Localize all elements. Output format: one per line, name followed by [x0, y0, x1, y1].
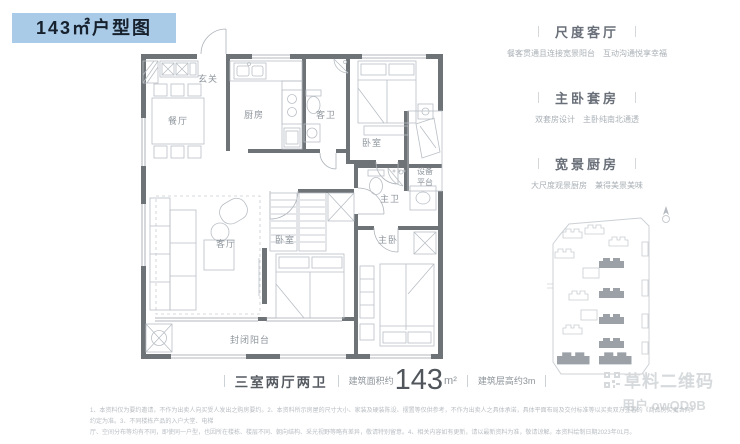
room-label-balcony: 封闭阳台 — [230, 334, 270, 345]
room-label-bedroom-north: 卧室 — [362, 137, 382, 148]
bedroom-south-furniture — [270, 193, 354, 318]
feature-kitchen: 宽景厨房 大尺度观景厨房 兼得美景美味 — [512, 154, 662, 191]
feature-desc: 双套房设计 主卧纯南北通透 — [512, 114, 662, 125]
divider-bar — [224, 375, 225, 387]
floor-plan: 玄关 餐厅 厨房 客卫 卧室 设备 平台 主卫 客厅 卧室 主卧 封闭阳台 — [98, 26, 478, 374]
disclaimer-line-1: 1、本资料仅为要约邀请，不作为出卖人向买受人发出之购房要约。2、本资料所示房屋的… — [90, 406, 696, 428]
disclaimer-line-2: 厅、空间分布等均有不同，即使同一户型，也因所在楼栋、楼层不同、朝向结构、采光视野… — [90, 428, 696, 439]
room-label-equip-1: 设备 — [417, 166, 433, 176]
room-label-master-bath: 主卫 — [380, 193, 400, 204]
guest-bath-furniture — [304, 59, 348, 142]
disclaimer: 1、本资料仅为要约邀请，不作为出卖人向买受人发出之购房要约。2、本资料所示房屋的… — [90, 406, 696, 439]
spec-layout: 三室两厅两卫 — [235, 371, 328, 391]
watermark-brand: 草料二维码 — [624, 367, 714, 392]
room-label-master-bedroom: 主卧 — [378, 234, 398, 245]
feature-master-suite: 主卧套房 双套房设计 主卧纯南北通透 — [512, 88, 662, 125]
feature-desc: 餐客贯通且连接宽景阳台 互动沟通悦享幸福 — [512, 48, 662, 59]
kitchen-furniture — [230, 61, 302, 149]
feature-list: 尺度客厅 餐客贯通且连接宽景阳台 互动沟通悦享幸福 主卧套房 双套房设计 主卧纯… — [512, 22, 662, 220]
entry-cabinet — [143, 61, 198, 83]
divider-bar — [467, 375, 468, 387]
room-label-bedroom-south: 卧室 — [275, 234, 295, 245]
room-label-dining: 餐厅 — [168, 115, 188, 126]
spec-bar: 三室两厅两卫 建筑面积约 143 m² 建筑层高约3m — [170, 366, 600, 395]
divider-bar — [538, 26, 539, 37]
feature-title: 主卧套房 — [555, 88, 619, 107]
room-label-living: 客厅 — [216, 238, 236, 249]
room-label-equip-2: 平台 — [417, 177, 433, 187]
qr-icon — [604, 372, 620, 388]
balcony-furniture — [146, 324, 172, 352]
site-road-ticks — [547, 284, 553, 288]
divider-bar — [635, 158, 636, 169]
divider-bar — [545, 375, 546, 387]
room-label-guest-bath: 客卫 — [316, 109, 336, 120]
spec-area-value: 143 — [395, 366, 443, 395]
spec-area-label: 建筑面积约 — [349, 374, 394, 387]
site-buildings-light — [555, 225, 648, 354]
divider-bar — [635, 26, 636, 37]
feature-desc: 大尺度观景厨房 兼得美景美味 — [512, 180, 662, 191]
spec-area-unit: m² — [444, 375, 457, 387]
compass-icon — [663, 206, 670, 223]
room-label-kitchen: 厨房 — [244, 109, 264, 120]
site-plan — [545, 198, 710, 390]
feature-living: 尺度客厅 餐客贯通且连接宽景阳台 互动沟通悦享幸福 — [512, 22, 662, 59]
feature-title: 尺度客厅 — [555, 22, 619, 41]
divider-bar — [338, 375, 339, 387]
living-furniture — [150, 195, 260, 314]
page: { "title_badge": "143㎡户型图", "plan": { "r… — [0, 0, 740, 444]
divider-bar — [635, 92, 636, 103]
divider-bar — [538, 92, 539, 103]
room-label-hall: 玄关 — [198, 73, 218, 84]
divider-bar — [538, 158, 539, 169]
feature-title: 宽景厨房 — [555, 154, 619, 173]
spec-height-label: 建筑层高约3m — [478, 374, 536, 387]
